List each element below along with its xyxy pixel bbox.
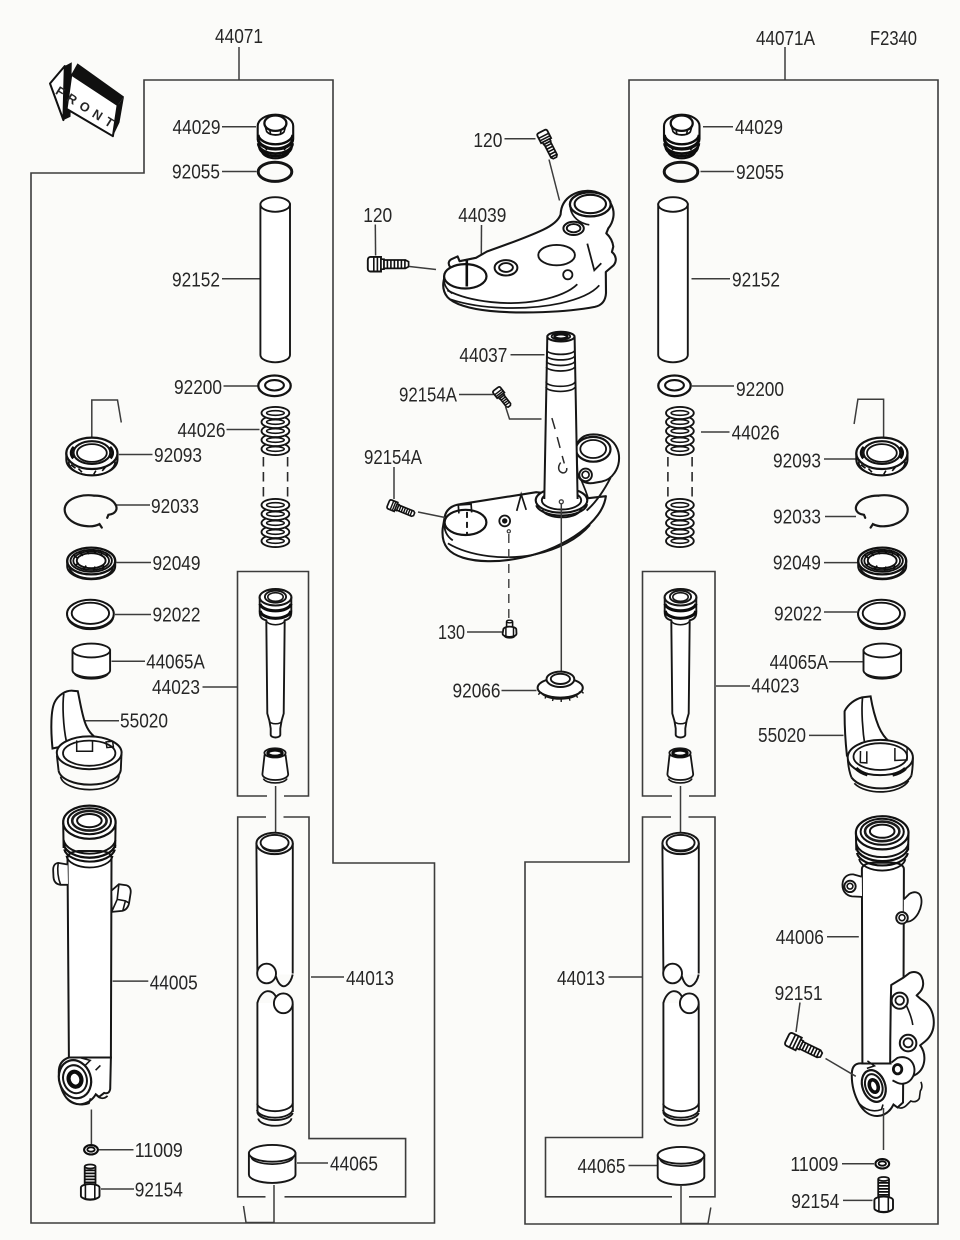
- svg-text:92066: 92066: [453, 681, 501, 703]
- svg-text:92154A: 92154A: [364, 447, 423, 469]
- svg-text:92152: 92152: [172, 270, 220, 292]
- svg-text:44037: 44037: [459, 345, 507, 367]
- svg-text:44065: 44065: [578, 1156, 626, 1178]
- svg-text:92055: 92055: [172, 162, 220, 184]
- svg-text:44029: 44029: [735, 117, 783, 139]
- svg-text:92033: 92033: [773, 507, 821, 529]
- svg-text:120: 120: [473, 130, 502, 152]
- svg-text:44023: 44023: [751, 676, 799, 698]
- svg-text:11009: 11009: [135, 1140, 183, 1162]
- svg-text:44013: 44013: [557, 968, 605, 990]
- svg-text:44029: 44029: [173, 117, 221, 139]
- svg-text:44071: 44071: [215, 26, 263, 48]
- svg-text:92049: 92049: [153, 553, 201, 575]
- svg-text:92093: 92093: [154, 445, 202, 467]
- svg-text:44071A: 44071A: [756, 28, 816, 50]
- svg-text:44026: 44026: [178, 420, 226, 442]
- svg-text:92200: 92200: [736, 379, 784, 401]
- svg-text:F2340: F2340: [870, 28, 917, 50]
- svg-text:44065: 44065: [330, 1154, 378, 1176]
- svg-text:92154: 92154: [135, 1180, 183, 1202]
- svg-text:44005: 44005: [150, 973, 198, 995]
- svg-text:44065A: 44065A: [770, 652, 829, 674]
- svg-text:92022: 92022: [774, 604, 822, 626]
- svg-text:11009: 11009: [790, 1154, 838, 1176]
- svg-text:44039: 44039: [458, 205, 506, 227]
- svg-text:92049: 92049: [773, 553, 821, 575]
- svg-text:92154: 92154: [791, 1191, 839, 1213]
- svg-text:92200: 92200: [174, 377, 222, 399]
- svg-text:44006: 44006: [776, 927, 824, 949]
- svg-text:44023: 44023: [152, 677, 200, 699]
- svg-text:92033: 92033: [151, 496, 199, 518]
- svg-text:55020: 55020: [758, 725, 806, 747]
- svg-text:130: 130: [438, 622, 465, 644]
- svg-text:120: 120: [363, 205, 392, 227]
- svg-text:92022: 92022: [153, 605, 201, 627]
- svg-text:92151: 92151: [775, 983, 823, 1005]
- svg-text:92055: 92055: [736, 162, 784, 184]
- svg-text:92093: 92093: [773, 451, 821, 473]
- svg-text:55020: 55020: [120, 711, 168, 733]
- svg-text:44065A: 44065A: [146, 652, 205, 674]
- svg-text:92152: 92152: [732, 270, 780, 292]
- svg-text:92154A: 92154A: [399, 385, 458, 407]
- svg-text:44013: 44013: [346, 968, 394, 990]
- svg-text:44026: 44026: [732, 423, 780, 445]
